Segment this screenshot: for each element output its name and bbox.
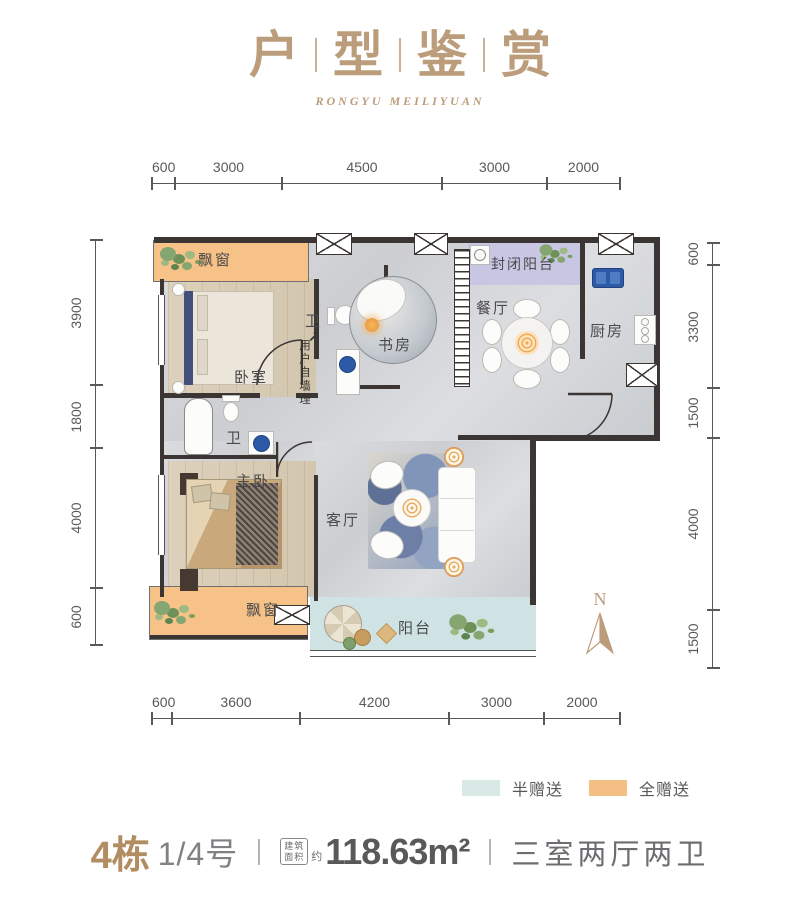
- toilet-icon: [222, 395, 240, 402]
- dining-table-center-icon: [515, 331, 539, 355]
- sink-basin-icon: [610, 272, 620, 284]
- dim-segment: 4500: [282, 183, 442, 184]
- stove-burner-icon: [641, 318, 649, 326]
- dim-segment: 4200: [300, 718, 449, 719]
- legend-swatch-full-gift: [589, 780, 627, 796]
- dim-segment: 3300: [712, 265, 713, 388]
- unit-info: 4栋 1/4号 建筑 面积 约 118.63m² 三室两厅两卫: [0, 824, 800, 879]
- wall-living-left: [314, 475, 318, 601]
- washing-machine-drum-icon: [474, 249, 486, 261]
- plant-pot-icon: [343, 637, 356, 650]
- toilet-icon: [327, 307, 335, 325]
- dim-segment: 600: [712, 243, 713, 265]
- pillow-icon: [209, 492, 231, 511]
- dim-segment: 2000: [547, 183, 620, 184]
- dim-segment: 1500: [712, 388, 713, 438]
- stove-burner-icon: [641, 335, 649, 343]
- dim-segment: 3000: [449, 718, 544, 719]
- wall-note-arrow-icon: ↗: [308, 327, 321, 345]
- nightstand-icon: [172, 381, 185, 394]
- legend: 半赠送 全赠送: [462, 776, 704, 800]
- entry-door-arc-icon: [566, 391, 614, 441]
- dim-segment: 4000: [712, 438, 713, 610]
- title-char: 赏: [501, 30, 551, 80]
- kitchen-cabinet-icon: [626, 363, 658, 387]
- plants-icon: [449, 614, 467, 629]
- bed-headboard-icon: [184, 291, 193, 385]
- pillow-icon: [197, 295, 208, 331]
- unit-number: 1/4号: [158, 829, 239, 875]
- room-label-study: 书房: [378, 334, 412, 355]
- dim-segment: 1800: [95, 385, 96, 448]
- svg-text:N: N: [594, 589, 607, 609]
- dim-segment: 600: [95, 588, 96, 645]
- dim-segment: 4000: [95, 448, 96, 588]
- wall-note: 用户自墙理: [296, 339, 312, 431]
- sink-basin-icon: [596, 272, 606, 284]
- dim-segment: 3000: [175, 183, 282, 184]
- toilet-icon: [223, 402, 239, 422]
- room-label-bedroom: 卧室: [234, 366, 268, 387]
- dim-segment: 2000: [544, 718, 620, 719]
- title-separator: [399, 38, 401, 72]
- stool-icon: [354, 629, 371, 646]
- pillow-icon: [197, 339, 208, 375]
- dim-segment: 600: [152, 183, 175, 184]
- legend-label-half-gift: 半赠送: [512, 776, 563, 800]
- bed-duvet-icon: [236, 483, 278, 565]
- area-value: 118.63m²: [325, 831, 469, 873]
- header: 户 型 鉴 赏 RONGYU MEILIYUAN: [0, 30, 800, 109]
- room-label-master-bedroom: 主卧: [236, 470, 270, 491]
- compass-icon: N: [578, 587, 622, 657]
- wall-dining-living-stub: [458, 435, 532, 440]
- floorplan-page: 户 型 鉴 赏 RONGYU MEILIYUAN 600 3000 4500 3…: [0, 0, 800, 897]
- building-number: 4栋: [91, 824, 150, 879]
- title-separator: [315, 38, 317, 72]
- window-icon: [310, 650, 536, 657]
- dim-segment: 3600: [172, 718, 300, 719]
- dim-segment: 600: [152, 718, 172, 719]
- side-table-icon: [444, 447, 464, 467]
- washbasin-icon: [253, 435, 270, 452]
- side-table-icon: [444, 557, 464, 577]
- dim-segment: 3900: [95, 240, 96, 385]
- sofa-seam-icon: [440, 530, 474, 531]
- window-icon: [598, 233, 634, 255]
- plants-icon: [154, 601, 170, 615]
- nightstand-icon: [180, 569, 198, 591]
- door-arc-icon: [276, 441, 313, 478]
- title-char: 户: [249, 30, 299, 80]
- legend-swatch-half-gift: [462, 780, 500, 796]
- title-separator: [483, 38, 485, 72]
- dining-chair-icon: [513, 299, 541, 319]
- wall-bay-bottom: [150, 635, 308, 639]
- approx-label: 约: [311, 834, 322, 864]
- room-label-bath2: 卫: [226, 427, 243, 448]
- room-label-bay-window-top: 飘窗: [198, 249, 232, 270]
- title-char: 型: [333, 30, 383, 80]
- dining-chair-icon: [550, 347, 570, 373]
- layout-description: 三室两厅两卫: [511, 831, 709, 873]
- subtitle: RONGYU MEILIYUAN: [0, 94, 800, 109]
- area-label-box: 建筑 面积: [280, 838, 308, 865]
- divider: [489, 839, 491, 865]
- coffee-table-center-icon: [402, 498, 422, 518]
- title-char: 鉴: [417, 30, 467, 80]
- sofa-icon: [438, 467, 476, 563]
- dining-chair-icon: [513, 369, 541, 389]
- floor-plan: 飘窗 卧室 卫 书房 封闭阳台 餐厅 厨房 卫 主卧 飘窗 客厅 阳台 用户自墙…: [150, 235, 662, 680]
- lamp-icon: [365, 318, 379, 332]
- window-icon: [316, 233, 352, 255]
- area-label-top: 建筑: [284, 841, 304, 851]
- nightstand-icon: [172, 283, 185, 296]
- area-label-bottom: 面积: [284, 852, 304, 862]
- room-label-living: 客厅: [326, 509, 360, 530]
- window-icon: [158, 475, 165, 555]
- washbasin-icon: [339, 356, 356, 373]
- dim-segment: 1500: [712, 610, 713, 668]
- wall-kitchen-left: [580, 243, 585, 359]
- window-icon: [158, 295, 165, 365]
- page-title: 户 型 鉴 赏: [0, 30, 800, 80]
- dining-chair-icon: [550, 319, 570, 345]
- room-label-bay-window-bottom: 飘窗: [246, 599, 280, 620]
- room-label-dining: 餐厅: [476, 297, 510, 318]
- stove-burner-icon: [641, 327, 649, 335]
- dining-chair-icon: [482, 319, 502, 345]
- wardrobe-icon: [454, 249, 470, 387]
- sofa-seam-icon: [440, 498, 474, 499]
- room-label-kitchen: 厨房: [590, 320, 624, 341]
- dim-segment: 3000: [442, 183, 547, 184]
- plants-icon: [160, 247, 176, 261]
- wall-bath2-bottom: [164, 455, 276, 459]
- legend-label-full-gift: 全赠送: [639, 776, 690, 800]
- divider: [258, 839, 260, 865]
- bathtub-icon: [184, 398, 213, 455]
- dining-chair-icon: [482, 347, 502, 373]
- wall-living-right: [530, 435, 536, 605]
- room-label-balcony: 阳台: [398, 617, 432, 638]
- window-icon: [414, 233, 448, 255]
- room-label-enclosed-balcony: 封闭阳台: [491, 254, 555, 274]
